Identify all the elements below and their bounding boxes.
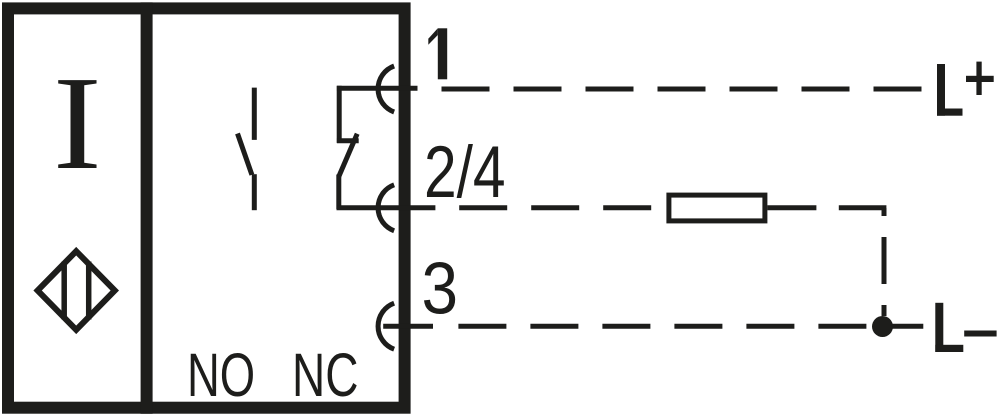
svg-text:3: 3	[422, 247, 459, 329]
svg-text:NC: NC	[292, 342, 358, 410]
svg-text:I: I	[53, 49, 102, 197]
svg-text:2/4: 2/4	[424, 132, 506, 214]
svg-text:NO: NO	[187, 342, 255, 410]
